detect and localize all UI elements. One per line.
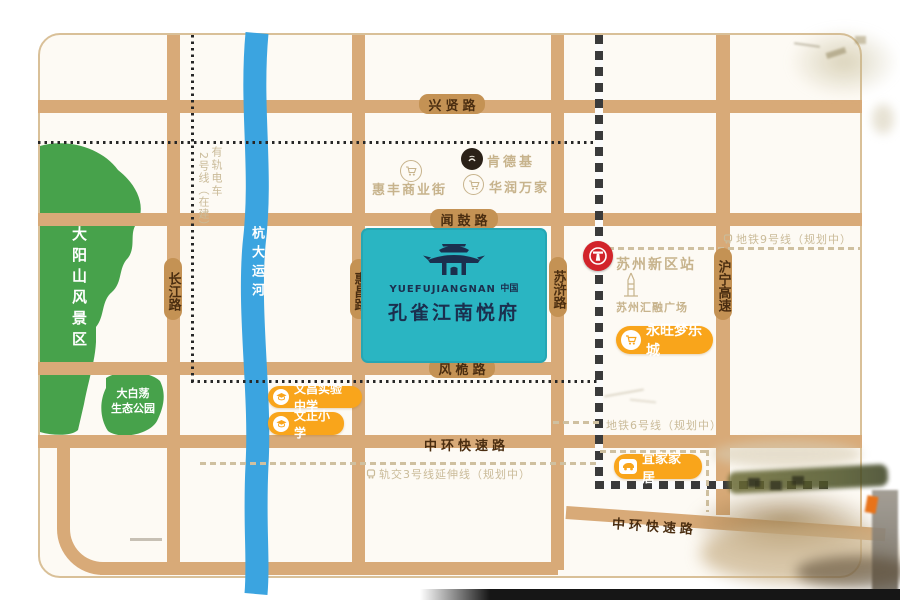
metro9-label: 地铁9号线（规划中） [723,231,852,247]
bottom-dark-bar [420,589,900,600]
wenzheng-school-badge: 文正小学 [268,412,344,435]
car-icon [622,462,635,471]
tram-line-south [191,380,597,383]
road-label-changjiang: 长江路 [164,258,182,320]
river-label: 杭大运河 [247,226,266,302]
aeon-badge: 永旺梦乐城 [616,326,713,354]
road-label-huning: 沪宁高速 [714,248,732,320]
school-cap-icon [273,389,289,405]
dabaidang-label: 大白荡 生态公园 [100,386,166,416]
metro3ext-line [200,462,597,465]
project-name-cn: 孔雀江南悦府 [361,298,547,325]
huirong-label: 苏州汇融广场 [616,299,688,315]
railway-station-icon [583,241,613,271]
huifeng-label: 惠丰商业街 [372,179,447,198]
smudge-bottom [712,440,862,468]
train-icon [366,469,376,479]
project-block: YUEFUJIANGNAN 中国 孔雀江南悦府 [361,228,547,363]
project-name-en: YUEFUJIANGNAN 中国 [361,282,547,295]
school-cap-icon [273,416,289,432]
metro6-label: 地铁6号线（规划中） [606,417,722,433]
tram-line-vertical [191,35,194,383]
tram-line-north [38,141,597,144]
artifact-gray-line [130,538,162,541]
huirong-building-icon [620,272,642,298]
china-railway-logo-icon [588,246,608,266]
graduation-cap-icon [276,419,287,429]
smudge-speck [855,36,866,44]
ikea-badge: 宜家家居 [614,454,702,479]
smudge-right-edge [872,104,894,134]
china-seal: 中国 [500,281,518,294]
road-label-suhu: 苏浒路 [549,257,567,317]
kfc-label: 肯德基 [487,151,535,170]
aeon-cart-icon [621,330,641,350]
river-shape [252,33,257,594]
cart-icon [625,334,637,346]
metro3ext-label: 轨交3号线延伸线（规划中） [366,466,531,482]
smudge-top-right [788,26,900,98]
kfc-face-icon [466,153,478,165]
graduation-cap-icon [276,392,287,402]
pavilion-roof-icon [422,241,486,277]
train-icon [723,234,733,244]
huarun-cart-icon [463,174,484,195]
kfc-icon [461,148,483,170]
road-label-zhonghuan: 中环快速路 [424,435,509,454]
ikea-car-icon [619,459,637,474]
location-map: 兴贤路 闻鼓路 风桅路 中环快速路 中环快速路 长江路 惠昌路 苏浒路 沪宁高速… [0,0,900,600]
road-label-xingxian: 兴贤路 [419,94,485,114]
cart-icon [468,179,480,191]
dayangshan-label: 大阳山风景区 [69,226,90,352]
tram-label-line2: 2号线（在建） [195,152,211,232]
wenchang-school-badge: 文昌实验中学 [268,386,362,408]
metro6-line-west [553,421,603,424]
road-label-wengu: 闻鼓路 [430,209,498,229]
station-label: 苏州新区站 [616,254,696,274]
smudge-flecks [748,478,760,487]
cart-icon [405,165,417,177]
metro9-line [608,247,860,250]
huarun-label: 华润万家 [489,177,549,196]
